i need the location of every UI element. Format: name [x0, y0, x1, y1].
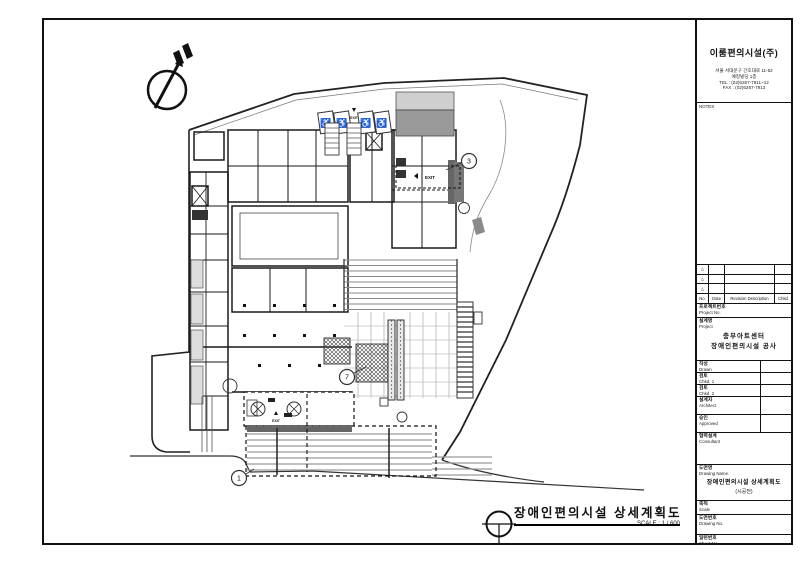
- revision-marker: △: [697, 265, 709, 274]
- drawing-title-bar: 장애인편의시설 상세계획도 SCALE : 1 / 600: [482, 502, 732, 546]
- consultant-label-en: Consultant: [699, 439, 789, 444]
- drawing-sheet: ♿ ♿ ♿ ♿ EXIT: [0, 0, 800, 565]
- structural-columns: [243, 304, 336, 367]
- revision-marker: △: [697, 275, 709, 284]
- drawing-name-line1: 장애인편의시설 상세계획도: [697, 477, 791, 486]
- wheelchair-icon: ♿: [376, 117, 387, 128]
- callout-7-number: 7: [345, 375, 349, 382]
- sheet-frame: ♿ ♿ ♿ ♿ EXIT: [42, 18, 793, 545]
- company-address: 서울 서대문구 간호대로 11-52 예정빌딩 1층 TEL : (02)626…: [697, 68, 791, 91]
- site-boundary: [152, 78, 587, 460]
- title-bubble-icon: [482, 504, 516, 546]
- north-arrow-icon: [148, 43, 193, 109]
- title-block: 이룸편의시설(주) 서울 서대문구 간호대로 11-52 예정빌딩 1층 TEL…: [695, 20, 791, 543]
- callout-1: 1: [232, 469, 255, 486]
- tb-drawing-name: 도면명 Drawing Name. 장애인편의시설 상세계획도 (시공전): [697, 464, 791, 500]
- tb-revision-table: △ △ △ No. Date Revision Description Chkd: [697, 264, 791, 303]
- wheelchair-icon: ♿: [360, 117, 371, 128]
- tb-architect: 설계자Architect: [697, 396, 791, 414]
- tb-consultant: 협력설계Consultant: [697, 432, 791, 464]
- revision-marker: △: [697, 284, 709, 293]
- callout-1-number: 1: [237, 476, 241, 483]
- drawing-name-label-en: Drawing Name.: [699, 471, 789, 476]
- tb-company: 이룸편의시설(주) 서울 서대문구 간호대로 11-52 예정빌딩 1층 TEL…: [697, 20, 791, 102]
- accessible-entrance-room: EXIT: [223, 379, 354, 432]
- address-line: FAX : (02)6267-7913: [697, 85, 791, 91]
- project-name: 충무아트센터 장애인편의시설 공사: [697, 332, 791, 352]
- project-name-line: 장애인편의시설 공사: [697, 342, 791, 352]
- signature-cell: [760, 373, 791, 384]
- revision-row: △: [697, 284, 791, 294]
- site-plan: ♿ ♿ ♿ ♿ EXIT: [44, 20, 699, 543]
- company-name: 이룸편의시설(주): [697, 46, 791, 59]
- drawing-name-line2: (시공전): [697, 488, 791, 495]
- notes-label: NOTES: [699, 104, 789, 109]
- project-name-line: 충무아트센터: [697, 332, 791, 342]
- exit-label: EXIT: [350, 116, 359, 120]
- project-label-en: Project: [699, 324, 789, 329]
- drawing-scale-note: SCALE : 1 / 600: [514, 521, 680, 527]
- project-no-label-en: Project No.: [699, 310, 789, 315]
- road-lines: [130, 456, 644, 490]
- drawing-name-value: 장애인편의시설 상세계획도 (시공전): [697, 477, 791, 495]
- left-wing-ramp: [202, 396, 212, 452]
- signature-cell: [760, 361, 791, 372]
- tb-approved: 승인Approved: [697, 414, 791, 432]
- revision-row: △: [697, 265, 791, 275]
- tb-project: 설계명 Project 충무아트센터 장애인편의시설 공사: [697, 317, 791, 360]
- signature-cell: [760, 385, 791, 396]
- tb-chkd2: 검토Chkd. 2: [697, 384, 791, 396]
- signature-cell: [760, 397, 791, 414]
- exit-label: EXIT: [272, 419, 281, 423]
- callout-3-number: 3: [467, 159, 471, 166]
- tb-project-no: 프로젝트번호 Project No.: [697, 303, 791, 317]
- tb-drawn: 작성Drawn: [697, 360, 791, 372]
- tb-notes: NOTES: [697, 102, 791, 264]
- revision-row: △: [697, 275, 791, 285]
- signature-cell: [760, 415, 791, 432]
- tb-chkd1: 검토Chkd. 1: [697, 372, 791, 384]
- exit-label: EXIT: [425, 175, 435, 180]
